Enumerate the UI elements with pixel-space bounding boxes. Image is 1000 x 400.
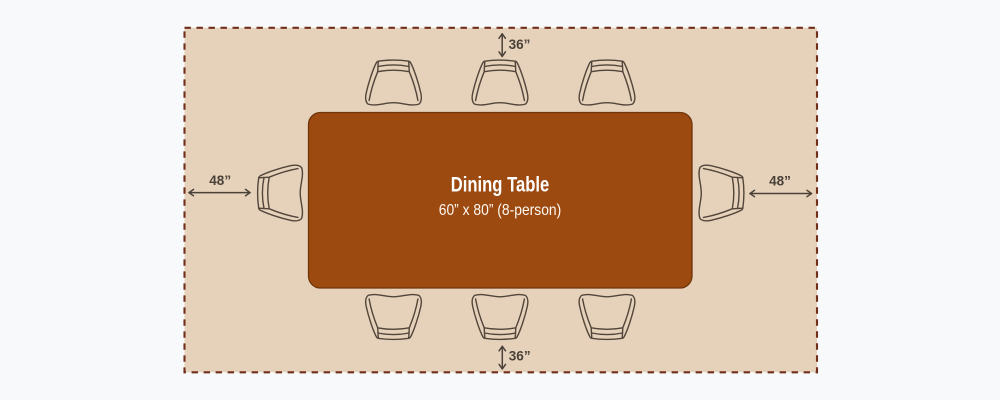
svg-text:Dining Table: Dining Table bbox=[451, 173, 550, 197]
svg-text:36”: 36” bbox=[509, 349, 531, 364]
svg-text:36”: 36” bbox=[509, 37, 531, 52]
svg-text:48”: 48” bbox=[209, 173, 231, 188]
svg-text:60” x 80” (8-person): 60” x 80” (8-person) bbox=[439, 202, 562, 219]
svg-text:48”: 48” bbox=[769, 174, 791, 189]
